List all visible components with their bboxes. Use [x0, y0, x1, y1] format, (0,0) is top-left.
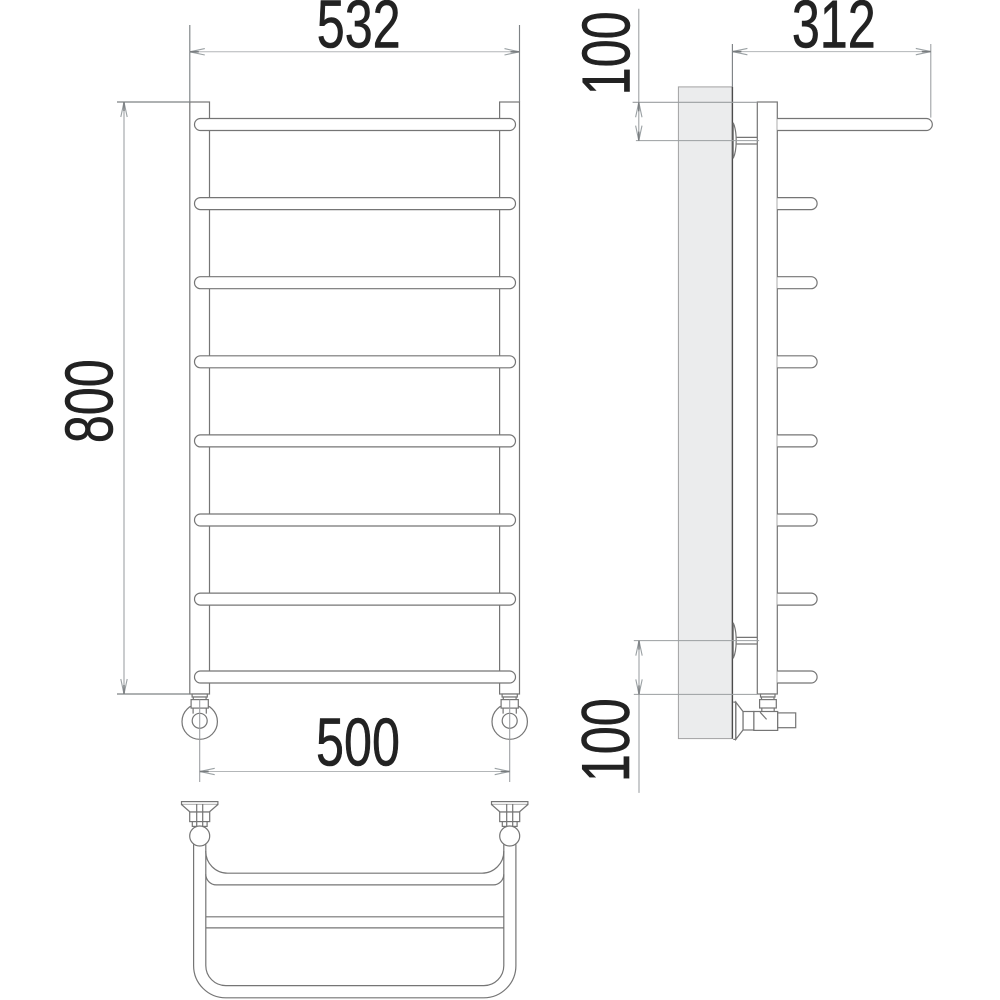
svg-text:500: 500 [316, 704, 400, 780]
svg-text:312: 312 [792, 0, 876, 62]
svg-text:800: 800 [51, 359, 127, 443]
svg-text:100: 100 [568, 11, 644, 95]
svg-text:532: 532 [317, 0, 401, 62]
svg-text:100: 100 [568, 698, 644, 782]
